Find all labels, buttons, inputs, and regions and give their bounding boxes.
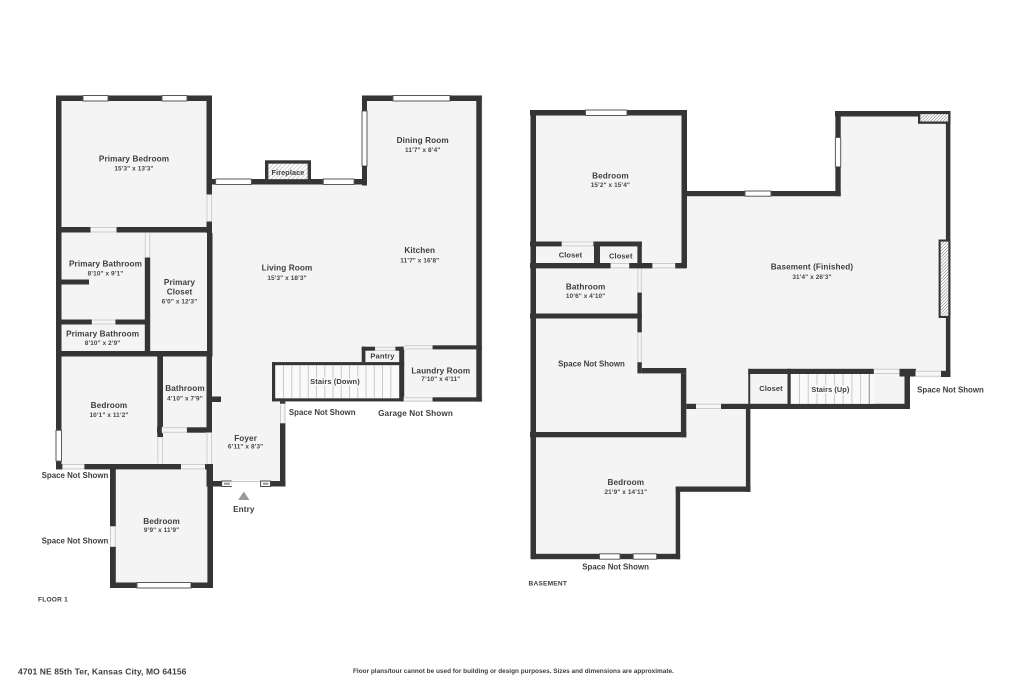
svg-text:15’3" x 13’3": 15’3" x 13’3" (114, 166, 153, 173)
svg-text:Kitchen: Kitchen (404, 246, 435, 255)
svg-text:Laundry Room: Laundry Room (411, 366, 470, 375)
svg-text:8’10" x 9’1": 8’10" x 9’1" (88, 271, 124, 278)
svg-text:4701 NE 85th Ter, Kansas City,: 4701 NE 85th Ter, Kansas City, MO 64156 (18, 667, 187, 677)
svg-text:Bedroom: Bedroom (592, 172, 629, 181)
svg-text:Stairs (Up): Stairs (Up) (811, 385, 849, 394)
svg-text:Stairs (Down): Stairs (Down) (310, 377, 360, 386)
svg-text:Space Not Shown: Space Not Shown (558, 359, 625, 368)
svg-text:6’11" x 8’3": 6’11" x 8’3" (228, 444, 263, 451)
svg-text:Bedroom: Bedroom (91, 401, 128, 410)
svg-text:FLOOR 1: FLOOR 1 (38, 597, 68, 604)
svg-text:8’10" x 2’9": 8’10" x 2’9" (85, 340, 121, 347)
svg-text:Fireplace: Fireplace (272, 168, 305, 177)
svg-text:Entry: Entry (233, 505, 255, 514)
svg-text:Basement (Finished): Basement (Finished) (771, 263, 854, 272)
svg-text:9’9" x 11’9": 9’9" x 11’9" (144, 527, 179, 534)
svg-text:BASEMENT: BASEMENT (529, 581, 568, 588)
svg-text:Foyer: Foyer (234, 434, 258, 443)
svg-text:4’10" x 7’9": 4’10" x 7’9" (167, 395, 203, 402)
svg-text:Closet: Closet (759, 384, 783, 393)
svg-text:11’7" x 16’8": 11’7" x 16’8" (400, 258, 439, 265)
svg-text:Floor plans/tour cannot be use: Floor plans/tour cannot be used for buil… (353, 668, 674, 675)
svg-text:Bathroom: Bathroom (566, 283, 605, 292)
svg-text:Primary Bedroom: Primary Bedroom (99, 155, 169, 164)
svg-text:Closet: Closet (559, 251, 583, 260)
svg-text:Space Not Shown: Space Not Shown (42, 537, 109, 546)
svg-text:Primary Bathroom: Primary Bathroom (69, 260, 142, 269)
svg-text:Closet: Closet (167, 288, 193, 297)
svg-text:Space Not Shown: Space Not Shown (917, 386, 984, 395)
svg-text:Living Room: Living Room (262, 264, 313, 273)
svg-text:15’3" x 18’3": 15’3" x 18’3" (267, 275, 306, 282)
svg-text:Primary: Primary (164, 278, 196, 287)
svg-text:Closet: Closet (609, 252, 633, 261)
svg-text:6’0" x 12’3": 6’0" x 12’3" (162, 298, 198, 305)
svg-text:Space Not Shown: Space Not Shown (582, 563, 649, 572)
svg-text:10’1" x 11’2": 10’1" x 11’2" (90, 412, 129, 419)
svg-text:Space Not Shown: Space Not Shown (289, 408, 356, 417)
svg-text:15’2" x 15’4": 15’2" x 15’4" (591, 182, 630, 189)
svg-text:Pantry: Pantry (370, 352, 395, 361)
svg-text:Dining Room: Dining Room (397, 136, 449, 145)
svg-text:11’7" x 8’4": 11’7" x 8’4" (405, 147, 440, 154)
svg-text:Primary Bathroom: Primary Bathroom (66, 329, 139, 338)
svg-text:Space Not Shown: Space Not Shown (42, 471, 109, 480)
svg-text:Bedroom: Bedroom (607, 478, 644, 487)
svg-text:31’4" x 26’3": 31’4" x 26’3" (792, 274, 831, 281)
svg-text:10’6" x 4’10": 10’6" x 4’10" (566, 293, 605, 300)
svg-text:Bathroom: Bathroom (165, 384, 204, 393)
svg-text:21’9" x 14’11": 21’9" x 14’11" (604, 489, 647, 496)
svg-text:Bedroom: Bedroom (143, 517, 180, 526)
svg-text:7’10" x 4’11": 7’10" x 4’11" (421, 376, 460, 383)
svg-text:Garage Not Shown: Garage Not Shown (378, 409, 453, 418)
